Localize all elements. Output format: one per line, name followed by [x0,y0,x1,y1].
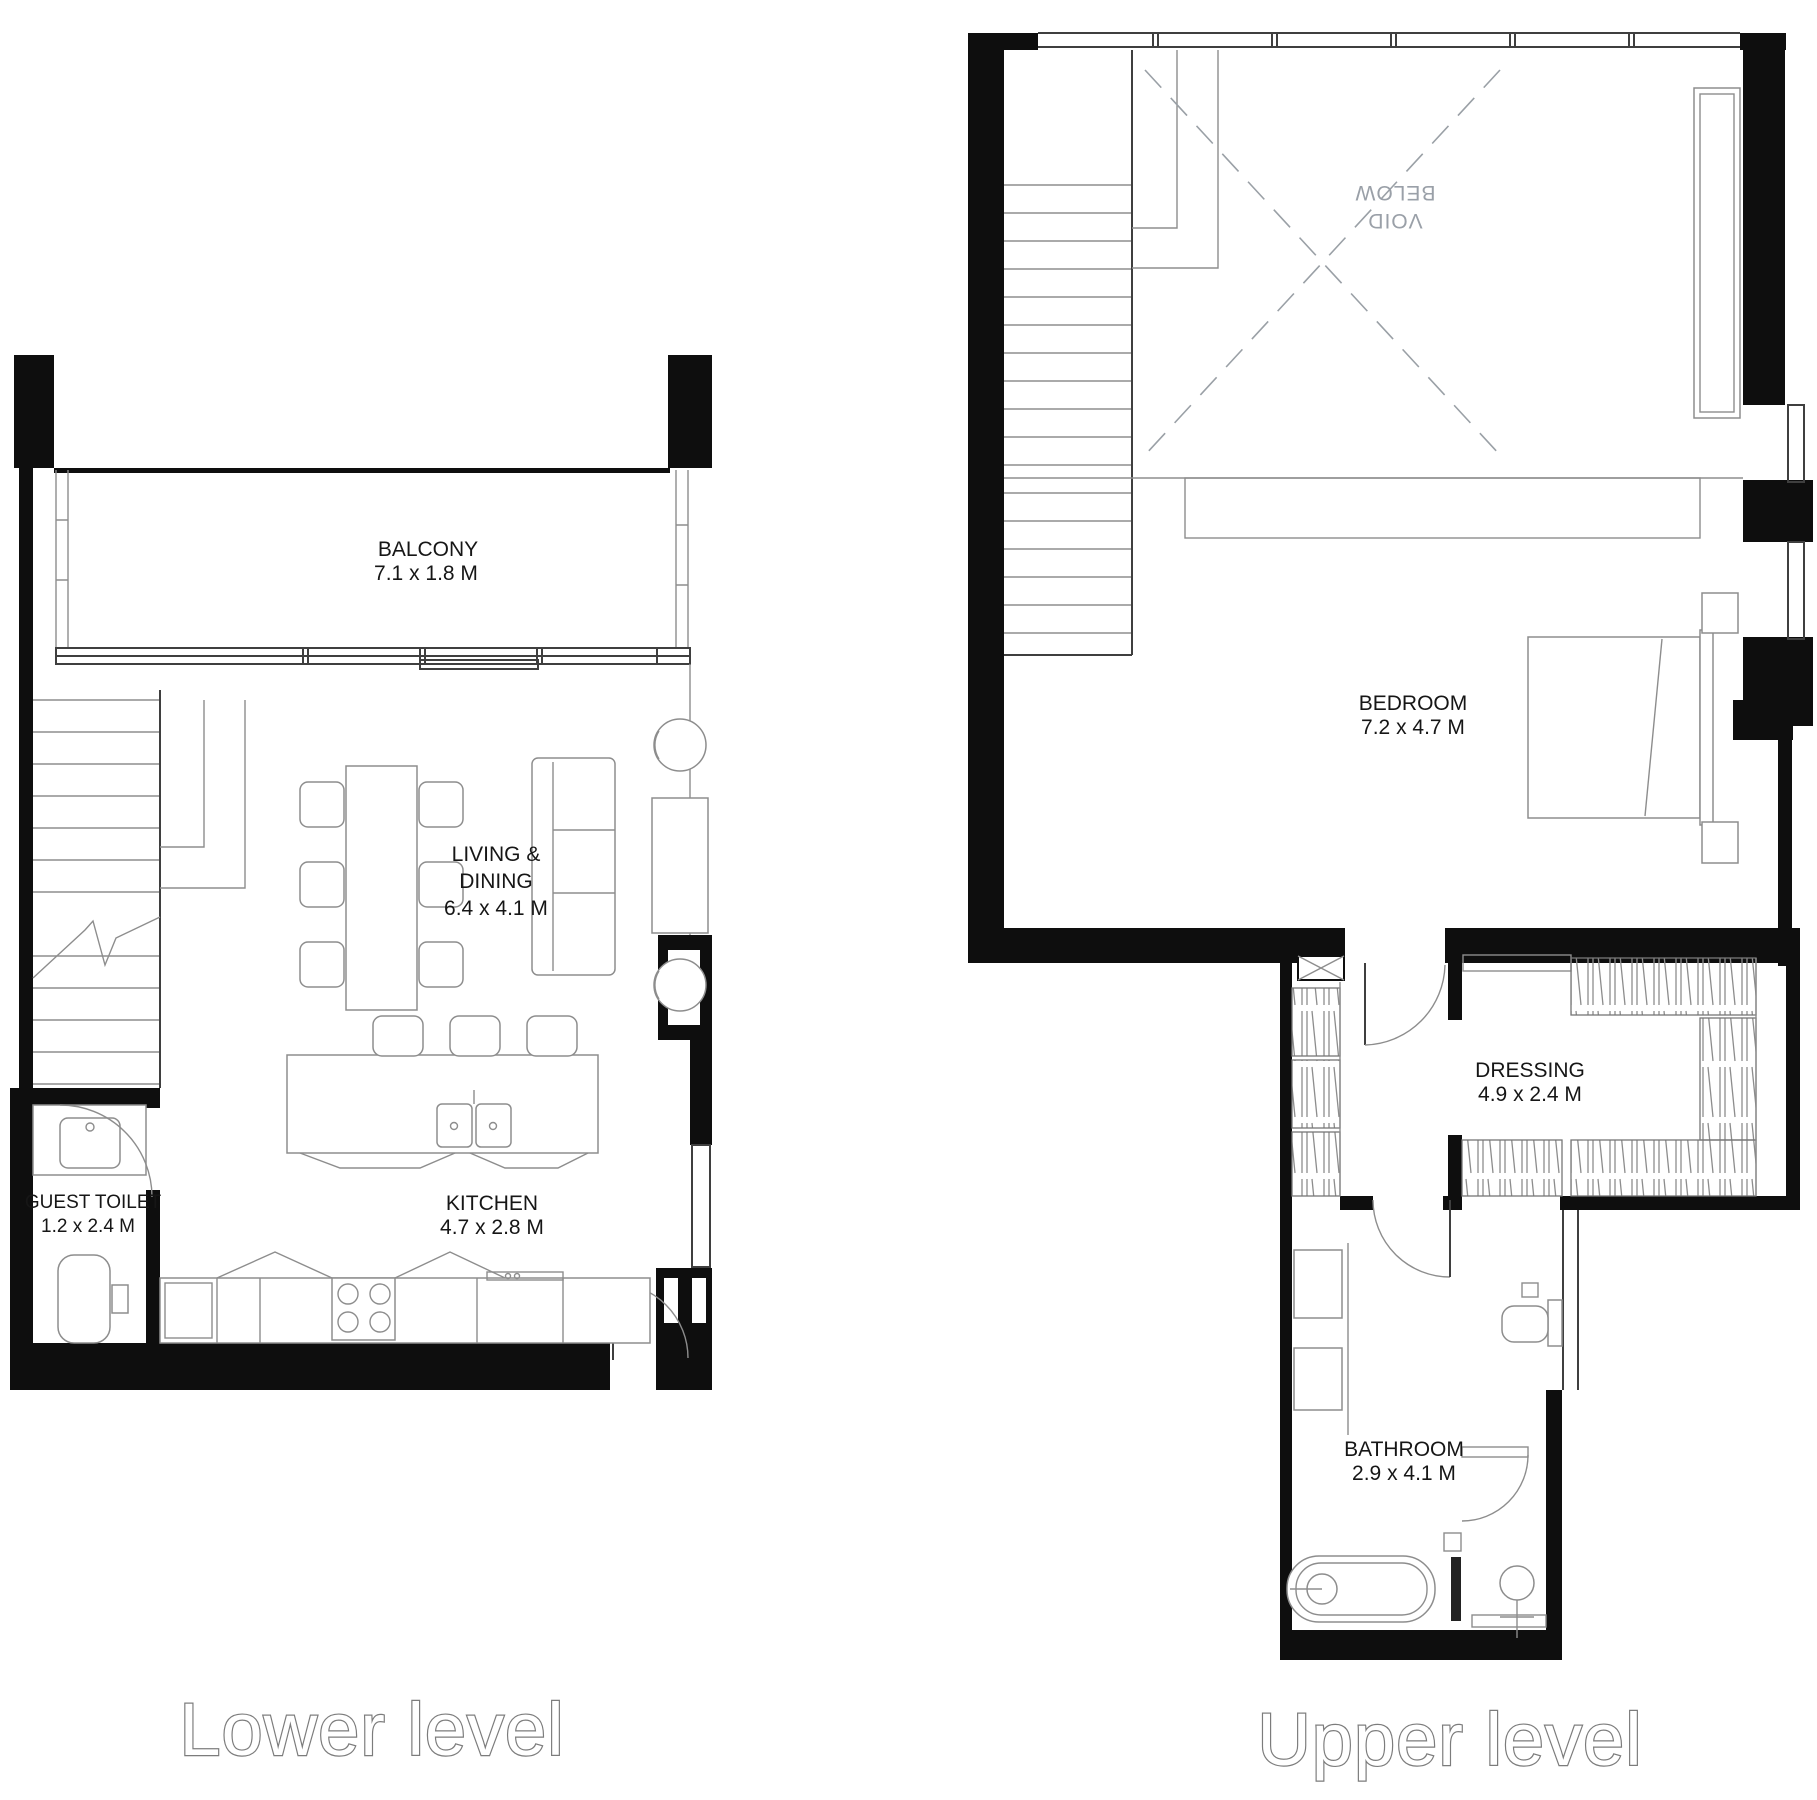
dressing-wardrobe-top [1571,958,1756,1015]
void-cross-lines [1145,70,1500,455]
wall-bottom [10,1343,610,1390]
wall-right-b [1743,480,1813,542]
dressing-wardrobe-bottom-left [1462,1140,1562,1196]
window-band-top [1038,33,1740,47]
island-sink-right [476,1104,511,1147]
shower-divider [1451,1557,1461,1621]
bathroom-door [1373,1200,1450,1277]
staircase-lower [33,690,245,1088]
void-label-group: VOID BELOW [1355,181,1436,232]
dressing-wardrobe-bottom-right [1571,1140,1756,1196]
window-wall [56,648,690,669]
wall-pillar-topleft [14,355,54,468]
dining-chair [419,782,463,827]
stair-landing-lines [160,700,245,888]
lower-level-plan: BALCONY 7.1 x 1.8 M LIVING & DINING 6.4 … [10,355,712,1390]
vanity-sink [1294,1250,1342,1318]
bed-headboard [1700,630,1713,825]
dining-chair [300,942,344,987]
toilet [1502,1283,1562,1346]
bar-stool [450,1016,500,1056]
toilet [58,1255,110,1343]
living-furniture [532,719,708,1011]
shower-door [1462,1447,1528,1521]
window-right-b [1788,542,1804,639]
void-label-line2: BELOW [1355,181,1436,204]
wall-bathroom-bottom [1280,1630,1562,1660]
upper-level-caption: Upper level [1257,1698,1642,1781]
living-label-line1: LIVING & [452,843,541,866]
island-sink-left [437,1104,472,1147]
balcony-dims: 7.1 x 1.8 M [374,562,478,585]
living-dims: 6.4 x 4.1 M [444,897,548,920]
bar-stool [527,1016,577,1056]
toilet-flush [112,1285,128,1313]
balcony-label: BALCONY [378,538,478,561]
balcony-edge-wall [54,468,670,473]
wall-dressing-bottom [1560,1196,1800,1210]
lower-level-caption: Lower level [179,1688,564,1771]
entry-frame-notch [692,1278,706,1323]
coffee-table [652,798,708,933]
wall-bath-top-b [1443,1196,1462,1210]
wall-bathroom-right [1546,1390,1562,1630]
shower [1472,1566,1546,1638]
void-label-line1: VOID [1367,209,1422,232]
bedroom-wardrobe-tall [1694,88,1740,418]
window-right-a [1788,405,1804,482]
kitchen-label: KITCHEN [446,1192,538,1215]
counter-run [160,1278,650,1343]
dressing-wardrobe-right [1700,1018,1756,1140]
dining-chair [300,862,344,907]
nightstand [1702,593,1738,633]
guest-toilet-label: GUEST TOILET [25,1192,162,1213]
sofa [532,758,615,975]
bathtub [1287,1556,1435,1622]
sink [60,1118,120,1168]
dining-chair [419,942,463,987]
wall-right-c [1743,637,1813,726]
kitchen-counter [160,1252,650,1343]
armchair [654,959,706,1011]
wall-right-a [1743,33,1785,405]
void-rail-ledge [1185,478,1700,538]
shower-head [1500,1566,1534,1600]
window-right [692,1145,710,1267]
island-base-lines [300,1153,588,1168]
dining-table [346,766,417,1010]
dining-chair [300,782,344,827]
wall-top-left [968,33,1038,50]
vanity-sink [1294,1348,1342,1410]
stove [332,1278,395,1340]
wall-corridor-left [1280,958,1292,1660]
wall-right-step2 [1733,726,1793,740]
balcony-railing-left [56,470,68,648]
stair-treads [33,700,160,1084]
wall-bedroom-bottom-left [968,928,1345,963]
wall-dressing-left-a [1448,958,1462,1020]
upper-level-plan: VOID BELOW [968,33,1813,1660]
staircase-upper [1004,50,1218,655]
living-label-line2: DINING [459,870,533,893]
armchair [654,719,706,771]
kitchen-dims: 4.7 x 2.8 M [440,1216,544,1239]
stair-treads [1004,185,1132,633]
stair-break-line [33,917,160,978]
floor-plan-sheet: BALCONY 7.1 x 1.8 M LIVING & DINING 6.4 … [0,0,1817,1800]
bedroom-door [1365,963,1445,1045]
void-area: VOID BELOW [1004,70,1743,538]
bed-mattress [1528,637,1700,818]
bathroom-dims: 2.9 x 4.1 M [1352,1462,1456,1485]
bedroom-dims: 7.2 x 4.7 M [1361,716,1465,739]
nightstand [1702,822,1738,863]
bed [1528,593,1738,863]
wall-dressing-right [1786,928,1800,1210]
dressing-label: DRESSING [1475,1059,1585,1082]
stair-rail-lines [1132,50,1218,268]
balcony-railing-right [676,470,688,648]
wall-bath-top-a [1340,1196,1373,1210]
balcony [14,355,712,669]
bar-stool [373,1016,423,1056]
dressing-dims: 4.9 x 2.4 M [1478,1083,1582,1106]
guest-toilet-dims: 1.2 x 2.4 M [41,1216,135,1237]
cabinet-door-marks [217,1252,505,1278]
wall-dressing-left-b [1448,1135,1462,1198]
bathroom-label: BATHROOM [1344,1438,1464,1461]
shaft [1298,956,1344,980]
dining-table-set [300,766,463,1010]
wall-fixture [1444,1533,1461,1551]
wall-pillar-topright [668,355,712,468]
kitchen-island [287,1016,598,1168]
bedroom-label: BEDROOM [1359,692,1468,715]
wall-left [968,33,1004,963]
wall-bathroom-right-upper [1563,1210,1578,1390]
floor-plan-drawing: BALCONY 7.1 x 1.8 M LIVING & DINING 6.4 … [0,0,1817,1800]
wall-right-mid [690,1040,712,1145]
corridor-wardrobes [1292,982,1340,1196]
